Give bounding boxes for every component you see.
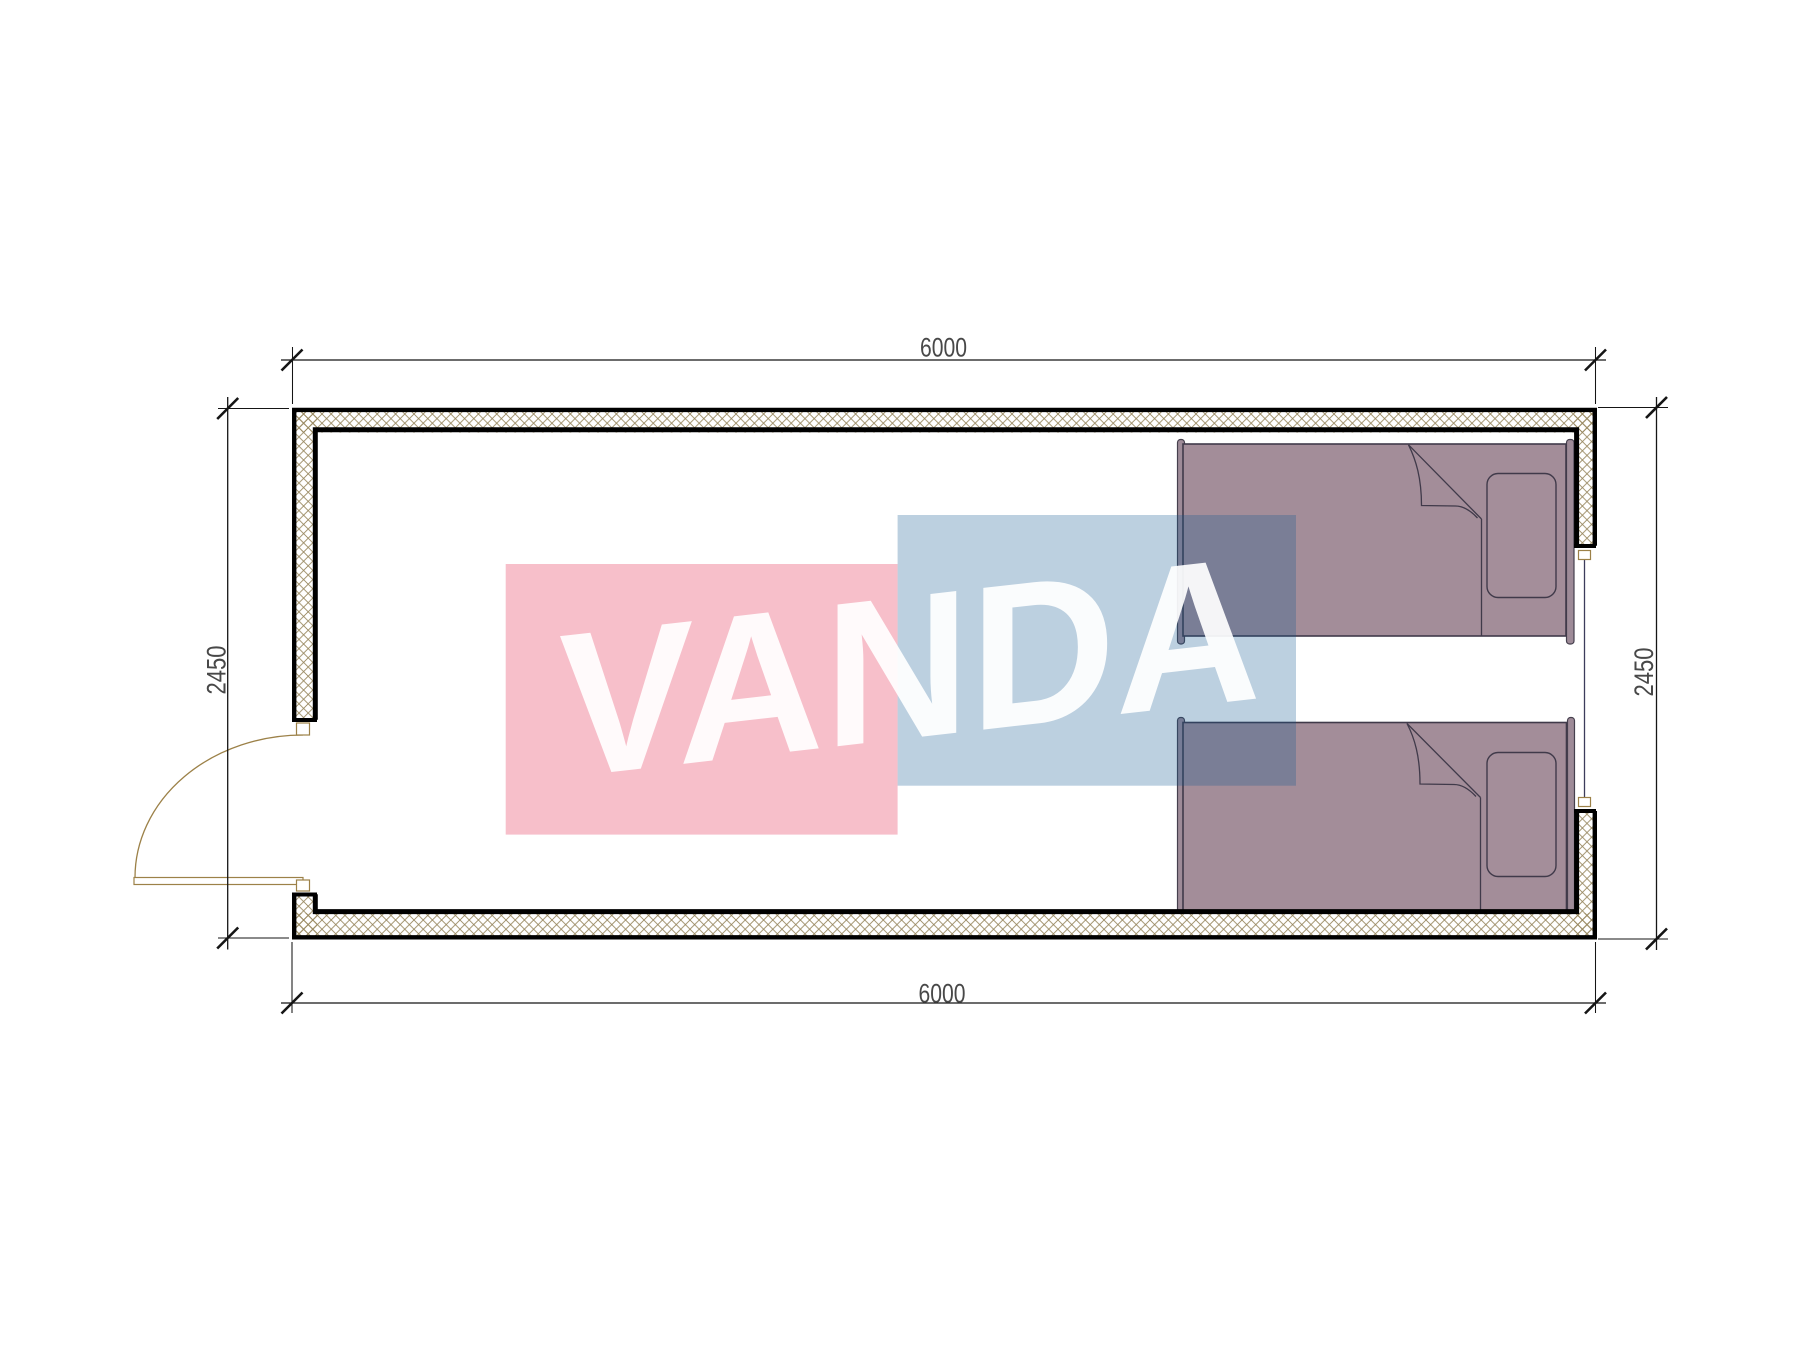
svg-text:2450: 2450 (1629, 648, 1659, 697)
svg-text:6000: 6000 (920, 333, 967, 363)
svg-text:2450: 2450 (202, 646, 232, 695)
svg-text:6000: 6000 (919, 979, 966, 1009)
